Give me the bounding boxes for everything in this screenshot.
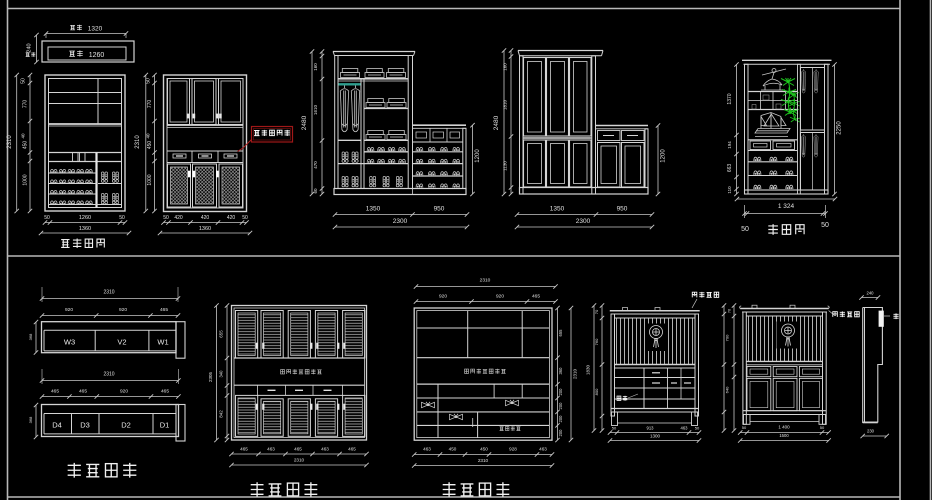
svg-text:368: 368	[28, 333, 33, 340]
svg-text:1 324: 1 324	[778, 203, 795, 210]
svg-text:50: 50	[119, 215, 125, 221]
svg-text:1000: 1000	[23, 174, 29, 185]
svg-text:2300: 2300	[393, 218, 408, 225]
svg-text:50: 50	[612, 426, 617, 431]
svg-text:2480: 2480	[493, 115, 500, 130]
svg-text:160: 160	[503, 63, 508, 71]
svg-text:2310: 2310	[480, 278, 491, 284]
svg-text:50: 50	[146, 78, 152, 84]
svg-text:360: 360	[558, 367, 563, 375]
svg-text:2310: 2310	[135, 135, 141, 149]
svg-text:2310: 2310	[478, 458, 489, 463]
svg-text:920: 920	[439, 294, 447, 300]
svg-text:663: 663	[727, 164, 733, 173]
svg-text:200: 200	[558, 388, 563, 396]
svg-text:2310: 2310	[7, 135, 13, 149]
svg-text:920: 920	[119, 307, 127, 313]
svg-text:D3: D3	[80, 421, 90, 430]
svg-text:1300: 1300	[650, 434, 661, 439]
svg-text:1610: 1610	[313, 104, 318, 115]
svg-text:2310: 2310	[103, 372, 114, 378]
svg-text:194: 194	[727, 141, 732, 149]
svg-text:1200: 1200	[475, 149, 481, 163]
svg-text:W3: W3	[64, 338, 75, 347]
svg-text:463: 463	[539, 447, 547, 452]
svg-text:450: 450	[147, 141, 153, 150]
svg-text:1360: 1360	[79, 226, 91, 232]
svg-text:770: 770	[147, 100, 153, 109]
svg-text:655: 655	[558, 329, 563, 337]
svg-text:2310: 2310	[103, 290, 114, 296]
svg-text:50: 50	[820, 425, 825, 430]
svg-text:110: 110	[727, 186, 732, 194]
svg-text:200: 200	[558, 429, 563, 437]
svg-text:70: 70	[728, 309, 732, 313]
svg-text:1830: 1830	[586, 364, 591, 375]
svg-text:770: 770	[23, 100, 29, 109]
svg-text:928: 928	[509, 447, 517, 452]
svg-text:70: 70	[594, 309, 599, 314]
svg-text:1350: 1350	[366, 206, 381, 213]
svg-text:1260: 1260	[79, 215, 91, 221]
svg-text:640: 640	[725, 386, 730, 393]
svg-text:40: 40	[146, 133, 151, 139]
svg-text:463: 463	[423, 447, 431, 452]
svg-text:465: 465	[294, 447, 302, 452]
svg-text:340: 340	[219, 370, 224, 378]
svg-text:230: 230	[867, 429, 875, 434]
svg-text:50: 50	[242, 215, 248, 221]
svg-text:368: 368	[28, 416, 33, 423]
svg-text:450: 450	[449, 447, 457, 452]
svg-text:50: 50	[44, 215, 50, 221]
svg-text:50: 50	[821, 222, 829, 229]
svg-text:1 400: 1 400	[778, 425, 790, 430]
svg-text:1360: 1360	[199, 226, 211, 232]
svg-text:920: 920	[120, 389, 128, 395]
svg-text:420: 420	[201, 215, 210, 221]
svg-text:950: 950	[434, 206, 445, 213]
svg-text:200: 200	[558, 415, 563, 423]
svg-text:2250: 2250	[837, 121, 843, 135]
svg-text:60: 60	[313, 188, 318, 194]
svg-text:1320: 1320	[88, 26, 103, 33]
svg-text:240: 240	[867, 291, 875, 296]
svg-text:2310: 2310	[294, 458, 305, 463]
svg-text:465: 465	[532, 294, 540, 300]
svg-text:D2: D2	[121, 421, 131, 430]
svg-text:1260: 1260	[89, 52, 105, 59]
svg-text:W1: W1	[157, 338, 168, 347]
svg-text:2300: 2300	[576, 218, 591, 225]
svg-text:465: 465	[79, 389, 87, 395]
svg-text:D4: D4	[52, 421, 62, 430]
svg-text:950: 950	[617, 206, 628, 213]
svg-text:700: 700	[725, 334, 730, 341]
svg-text:463: 463	[321, 447, 329, 452]
svg-text:50: 50	[741, 226, 749, 233]
svg-text:1370: 1370	[727, 93, 733, 104]
svg-text:50: 50	[21, 78, 27, 84]
svg-text:160: 160	[313, 63, 318, 71]
svg-text:800: 800	[594, 388, 599, 395]
svg-text:1000: 1000	[147, 174, 153, 185]
svg-text:463: 463	[681, 426, 689, 431]
svg-text:2305: 2305	[208, 371, 213, 382]
svg-text:40: 40	[21, 133, 26, 139]
svg-text:200: 200	[558, 402, 563, 410]
svg-text:50: 50	[742, 425, 747, 430]
svg-text:465: 465	[160, 307, 168, 313]
svg-text:420: 420	[227, 215, 236, 221]
svg-text:50: 50	[695, 426, 700, 431]
svg-text:2310: 2310	[573, 368, 578, 379]
svg-text:463: 463	[267, 447, 275, 452]
svg-text:470: 470	[313, 161, 318, 169]
svg-text:240: 240	[27, 43, 33, 52]
svg-text:450: 450	[480, 447, 488, 452]
svg-text:1810: 1810	[503, 99, 508, 110]
svg-text:1350: 1350	[550, 206, 565, 213]
svg-text:920: 920	[496, 294, 504, 300]
svg-text:465: 465	[161, 389, 169, 395]
svg-text:2480: 2480	[301, 115, 308, 130]
svg-text:842: 842	[219, 410, 224, 418]
svg-text:420: 420	[174, 215, 183, 221]
svg-text:465: 465	[51, 389, 59, 395]
svg-text:450: 450	[23, 141, 29, 150]
svg-text:465: 465	[240, 447, 248, 452]
svg-text:760: 760	[594, 338, 599, 345]
svg-text:V2: V2	[117, 338, 126, 347]
svg-text:920: 920	[65, 307, 73, 313]
svg-text:465: 465	[348, 447, 356, 452]
svg-text:655: 655	[219, 330, 224, 338]
svg-text:D1: D1	[160, 421, 170, 430]
svg-text:1500: 1500	[779, 433, 789, 438]
svg-text:1200: 1200	[661, 149, 667, 163]
svg-text:913: 913	[647, 426, 655, 431]
svg-text:1130: 1130	[503, 161, 508, 171]
svg-text:50: 50	[163, 215, 169, 221]
